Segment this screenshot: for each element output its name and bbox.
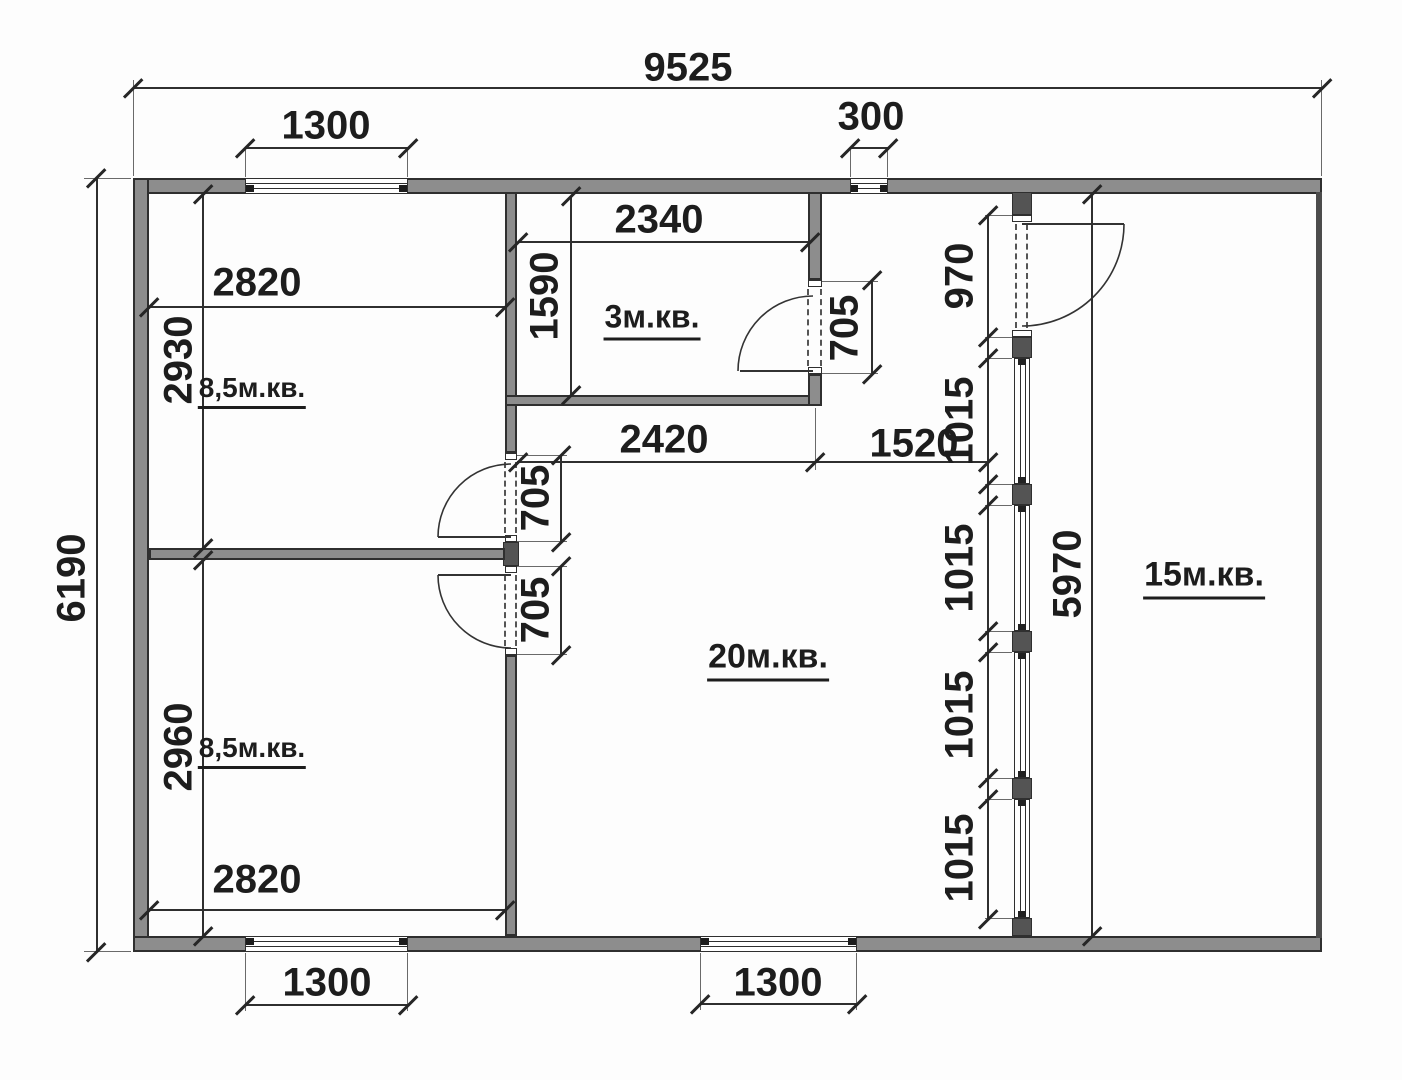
window-jamb — [246, 938, 254, 945]
dim-label-win-bc: 1300 — [734, 961, 823, 1006]
dim-label-door3: 705 — [823, 295, 868, 362]
door-panel-dashed — [807, 289, 822, 366]
glazing-line — [1020, 653, 1026, 777]
room-label-text: 20м.кв. — [707, 638, 829, 682]
door-swing-arc — [738, 296, 813, 371]
glazed-panel — [1014, 358, 1030, 484]
extension-line — [850, 150, 851, 177]
room-label-text: 3м.кв. — [604, 299, 701, 341]
window-jamb — [701, 938, 709, 945]
extension-line — [84, 951, 131, 952]
dim-label-room-tl-w: 2820 — [213, 261, 302, 306]
dim-label-room-bl-h: 2960 — [157, 703, 202, 792]
glazing-line — [1020, 359, 1026, 483]
wall-room3-right-lower — [808, 374, 822, 406]
door-swing-arc — [438, 464, 511, 537]
dim-line-partition-height — [1091, 194, 1093, 936]
glazing-stop — [1018, 800, 1026, 806]
room-label-3: 3м.кв. — [604, 299, 701, 336]
floor-plan: 9525 6190 1300 300 2930 2820 2340 1590 2… — [0, 0, 1402, 1080]
dim-line-vent — [850, 147, 888, 149]
glazing-stop — [1018, 359, 1026, 365]
dim-label-door-tl: 705 — [514, 465, 559, 532]
door-jamb — [808, 280, 822, 287]
dim-line-room-tl-w — [149, 306, 505, 308]
door-swing-arc — [438, 575, 511, 648]
dim-label-glz1: 1015 — [938, 377, 983, 466]
glazing-stop — [1018, 477, 1026, 483]
partition-post — [1012, 192, 1032, 215]
dim-line-door-tl — [560, 455, 562, 542]
door-jamb — [505, 648, 517, 655]
door-jamb — [808, 367, 822, 374]
partition-post — [1012, 337, 1032, 358]
window-jamb — [851, 185, 858, 192]
glazed-panel — [1014, 505, 1030, 631]
extension-line — [1321, 80, 1322, 176]
dim-label-partition-height: 5970 — [1046, 530, 1091, 619]
dim-line-room-bl-w — [149, 909, 505, 911]
dim-label-total-width: 9525 — [644, 46, 733, 91]
window-jamb — [399, 938, 407, 945]
door-jamb — [505, 566, 517, 573]
dim-label-partition-door: 970 — [938, 243, 983, 310]
door-jamb — [505, 535, 517, 542]
glazing-stop — [1018, 506, 1026, 512]
dim-label-glz2: 1015 — [938, 524, 983, 613]
dim-label-door-bl: 705 — [514, 577, 559, 644]
dim-label-total-height: 6190 — [50, 534, 95, 623]
partition-post — [1012, 778, 1032, 799]
room-label-text: 8,5м.кв. — [198, 372, 306, 409]
glazing-stop — [1018, 771, 1026, 777]
wall-right — [1316, 192, 1322, 938]
glazing-stop — [1018, 624, 1026, 630]
dim-line-room-tl-h — [202, 194, 204, 548]
room-label-85-top: 8,5м.кв. — [198, 372, 306, 404]
partition-post — [1012, 631, 1032, 652]
window-jamb — [246, 185, 254, 192]
glazing-stop — [1018, 653, 1026, 659]
dim-label-vent: 300 — [838, 95, 905, 140]
dim-label-room-tl-h: 2930 — [157, 316, 202, 405]
window-bottom-center — [700, 936, 857, 952]
dim-label-room3-h: 1590 — [523, 252, 568, 341]
room-label-15: 15м.кв. — [1143, 556, 1265, 595]
dim-line-total-height — [96, 178, 98, 952]
window-jamb — [399, 185, 407, 192]
room-label-text: 8,5м.кв. — [198, 732, 306, 769]
dim-label-room-bl-w: 2820 — [213, 858, 302, 903]
wall-interior-vertical-lower — [505, 655, 517, 936]
extension-line — [245, 150, 246, 177]
door-swing-arc — [1022, 224, 1124, 326]
dim-label-win-bl: 1300 — [283, 961, 372, 1006]
dim-label-glz3: 1015 — [938, 671, 983, 760]
dim-label-hall-a: 2420 — [620, 418, 709, 463]
window-top — [245, 178, 408, 194]
door-jamb — [1012, 330, 1032, 337]
dim-line-room3-h — [570, 196, 572, 395]
door-jamb — [505, 453, 517, 460]
window-jamb — [880, 185, 887, 192]
glazing-line — [1020, 800, 1026, 917]
room-label-text: 15м.кв. — [1143, 556, 1265, 600]
door-jamb — [1012, 215, 1032, 222]
window-glazing — [701, 941, 856, 947]
extension-line — [133, 80, 134, 176]
wall-left — [133, 178, 149, 952]
room-label-85-bottom: 8,5м.кв. — [198, 732, 306, 764]
wall-room3-bottom — [505, 395, 822, 406]
partition-post — [1012, 484, 1032, 505]
wall-tee-junction — [503, 542, 519, 566]
window-glazing — [246, 183, 407, 189]
dim-label-room3-w: 2340 — [615, 198, 704, 243]
wall-interior-vertical-upper — [505, 192, 517, 453]
partition-post — [1012, 918, 1032, 936]
glazed-panel — [1014, 652, 1030, 778]
dim-line-door3 — [871, 280, 873, 374]
dim-label-top-window: 1300 — [282, 104, 371, 149]
window-bottom-left — [245, 936, 408, 952]
glazing-stop — [1018, 911, 1026, 917]
window-glazing — [246, 941, 407, 947]
extension-line — [887, 150, 888, 177]
room-label-20: 20м.кв. — [707, 638, 829, 677]
extension-line — [407, 150, 408, 177]
dim-line-door-bl — [560, 566, 562, 655]
dim-line-partition-chain — [987, 215, 989, 919]
glazing-line — [1020, 506, 1026, 630]
dim-label-glz4: 1015 — [938, 814, 983, 903]
window-jamb — [848, 938, 856, 945]
glazed-panel — [1014, 799, 1030, 918]
door-panel-dashed — [1015, 224, 1028, 328]
extension-line — [84, 178, 131, 179]
